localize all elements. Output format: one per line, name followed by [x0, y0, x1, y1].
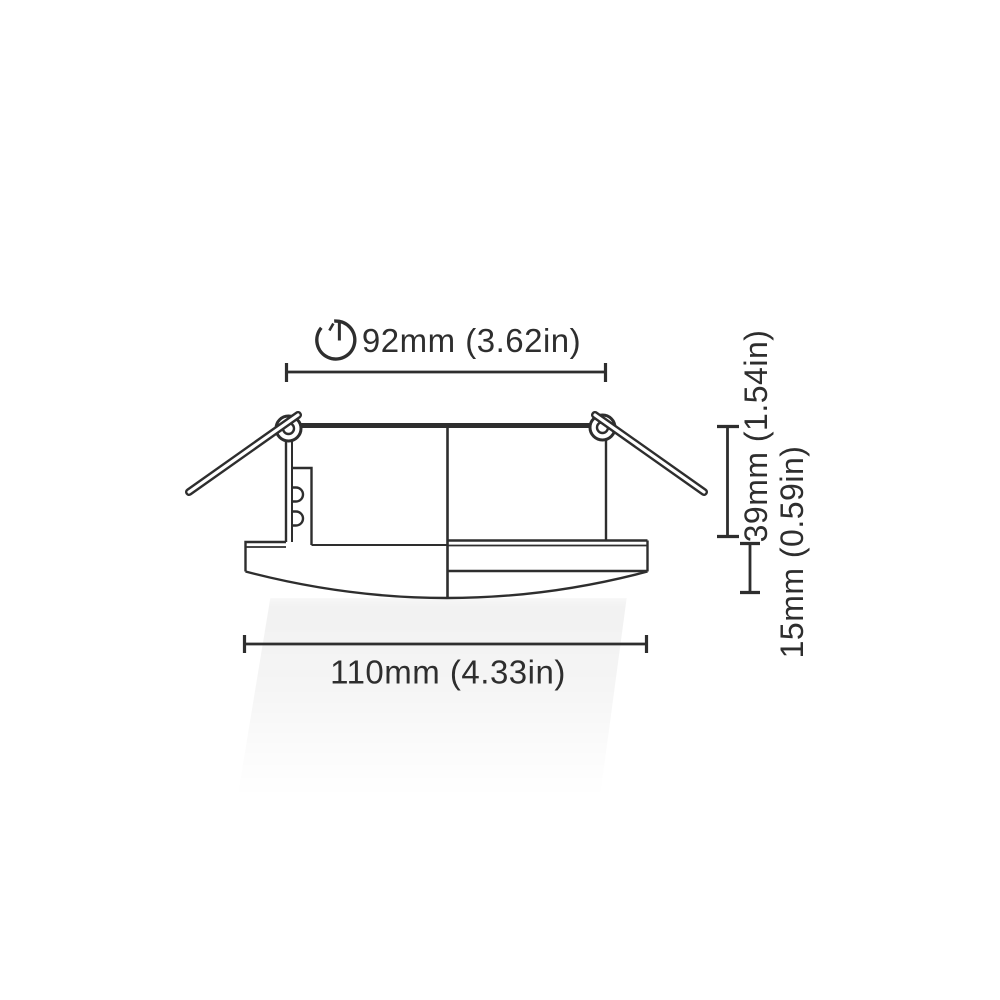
bezel-dimension-line	[740, 543, 760, 593]
top-dimension-line	[285, 363, 607, 382]
cutout-dimension-label: 92mm (3.62in)	[313, 317, 581, 363]
fixture-cross-section-drawing	[0, 0, 1000, 1000]
bezel-height-label: 15mm (0.59in)	[776, 446, 808, 659]
spring-clip-left	[189, 415, 301, 492]
diagram-canvas: 92mm (3.62in) 39mm (1.54in) 15mm (0.59in…	[0, 0, 1000, 1000]
depth-dimension-line	[717, 426, 739, 537]
cutout-dimension-text: 92mm (3.62in)	[362, 324, 581, 357]
recess-depth-label: 39mm (1.54in)	[740, 330, 772, 543]
overall-width-label: 110mm (4.33in)	[330, 656, 566, 689]
cutout-diameter-icon	[313, 317, 359, 363]
bottom-dimension-line	[243, 635, 648, 653]
